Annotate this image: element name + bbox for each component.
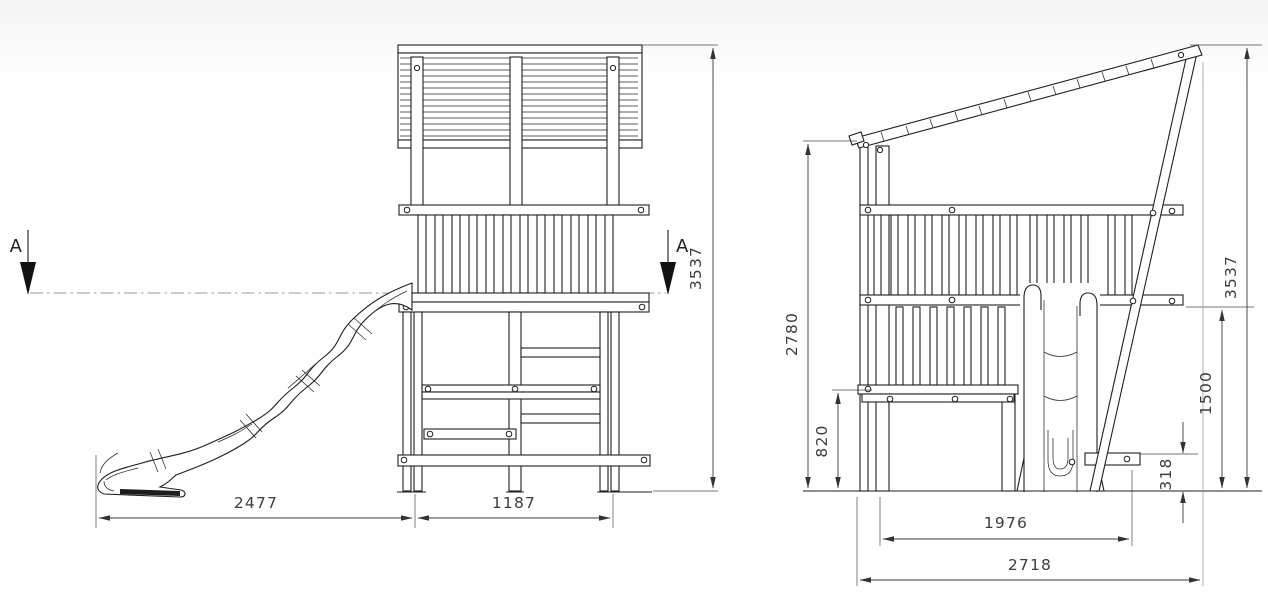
side-wall-lower <box>896 307 1005 385</box>
section-marker-right: A <box>660 230 689 295</box>
slide-front <box>98 283 412 497</box>
dim-front-tower-width: 1187 <box>492 494 536 512</box>
section-label-left: A <box>10 236 23 257</box>
dim-front-total-height: 3537 <box>687 246 705 290</box>
dim-side-platform-height: 820 <box>813 424 831 457</box>
front-lower-frame <box>397 312 652 492</box>
front-platform <box>399 293 649 312</box>
front-view: 2477 1187 3537 A A <box>10 45 718 528</box>
section-label-right: A <box>676 236 689 257</box>
section-marker-left: A <box>10 230 36 295</box>
dim-side-handrail-height: 1500 <box>1197 371 1215 415</box>
dim-side-overall-length: 2718 <box>1008 556 1052 574</box>
dim-side-wall-height: 2780 <box>783 312 801 356</box>
dim-front-slide-reach: 2477 <box>234 494 278 512</box>
drawing-page: 2477 1187 3537 A A <box>0 0 1268 603</box>
dim-side-total-height: 3537 <box>1222 255 1240 299</box>
dim-side-step-height: 318 <box>1157 457 1175 490</box>
technical-drawing-canvas: 2477 1187 3537 A A <box>0 0 1268 603</box>
side-roof-beam <box>849 45 1202 153</box>
front-balustrade <box>399 205 649 293</box>
side-diagonal-brace <box>1090 50 1197 491</box>
side-view: 2780 820 1976 2718 3537 1500 318 <box>783 45 1262 586</box>
dim-side-base-length: 1976 <box>984 514 1028 532</box>
side-step-board <box>1085 453 1140 465</box>
